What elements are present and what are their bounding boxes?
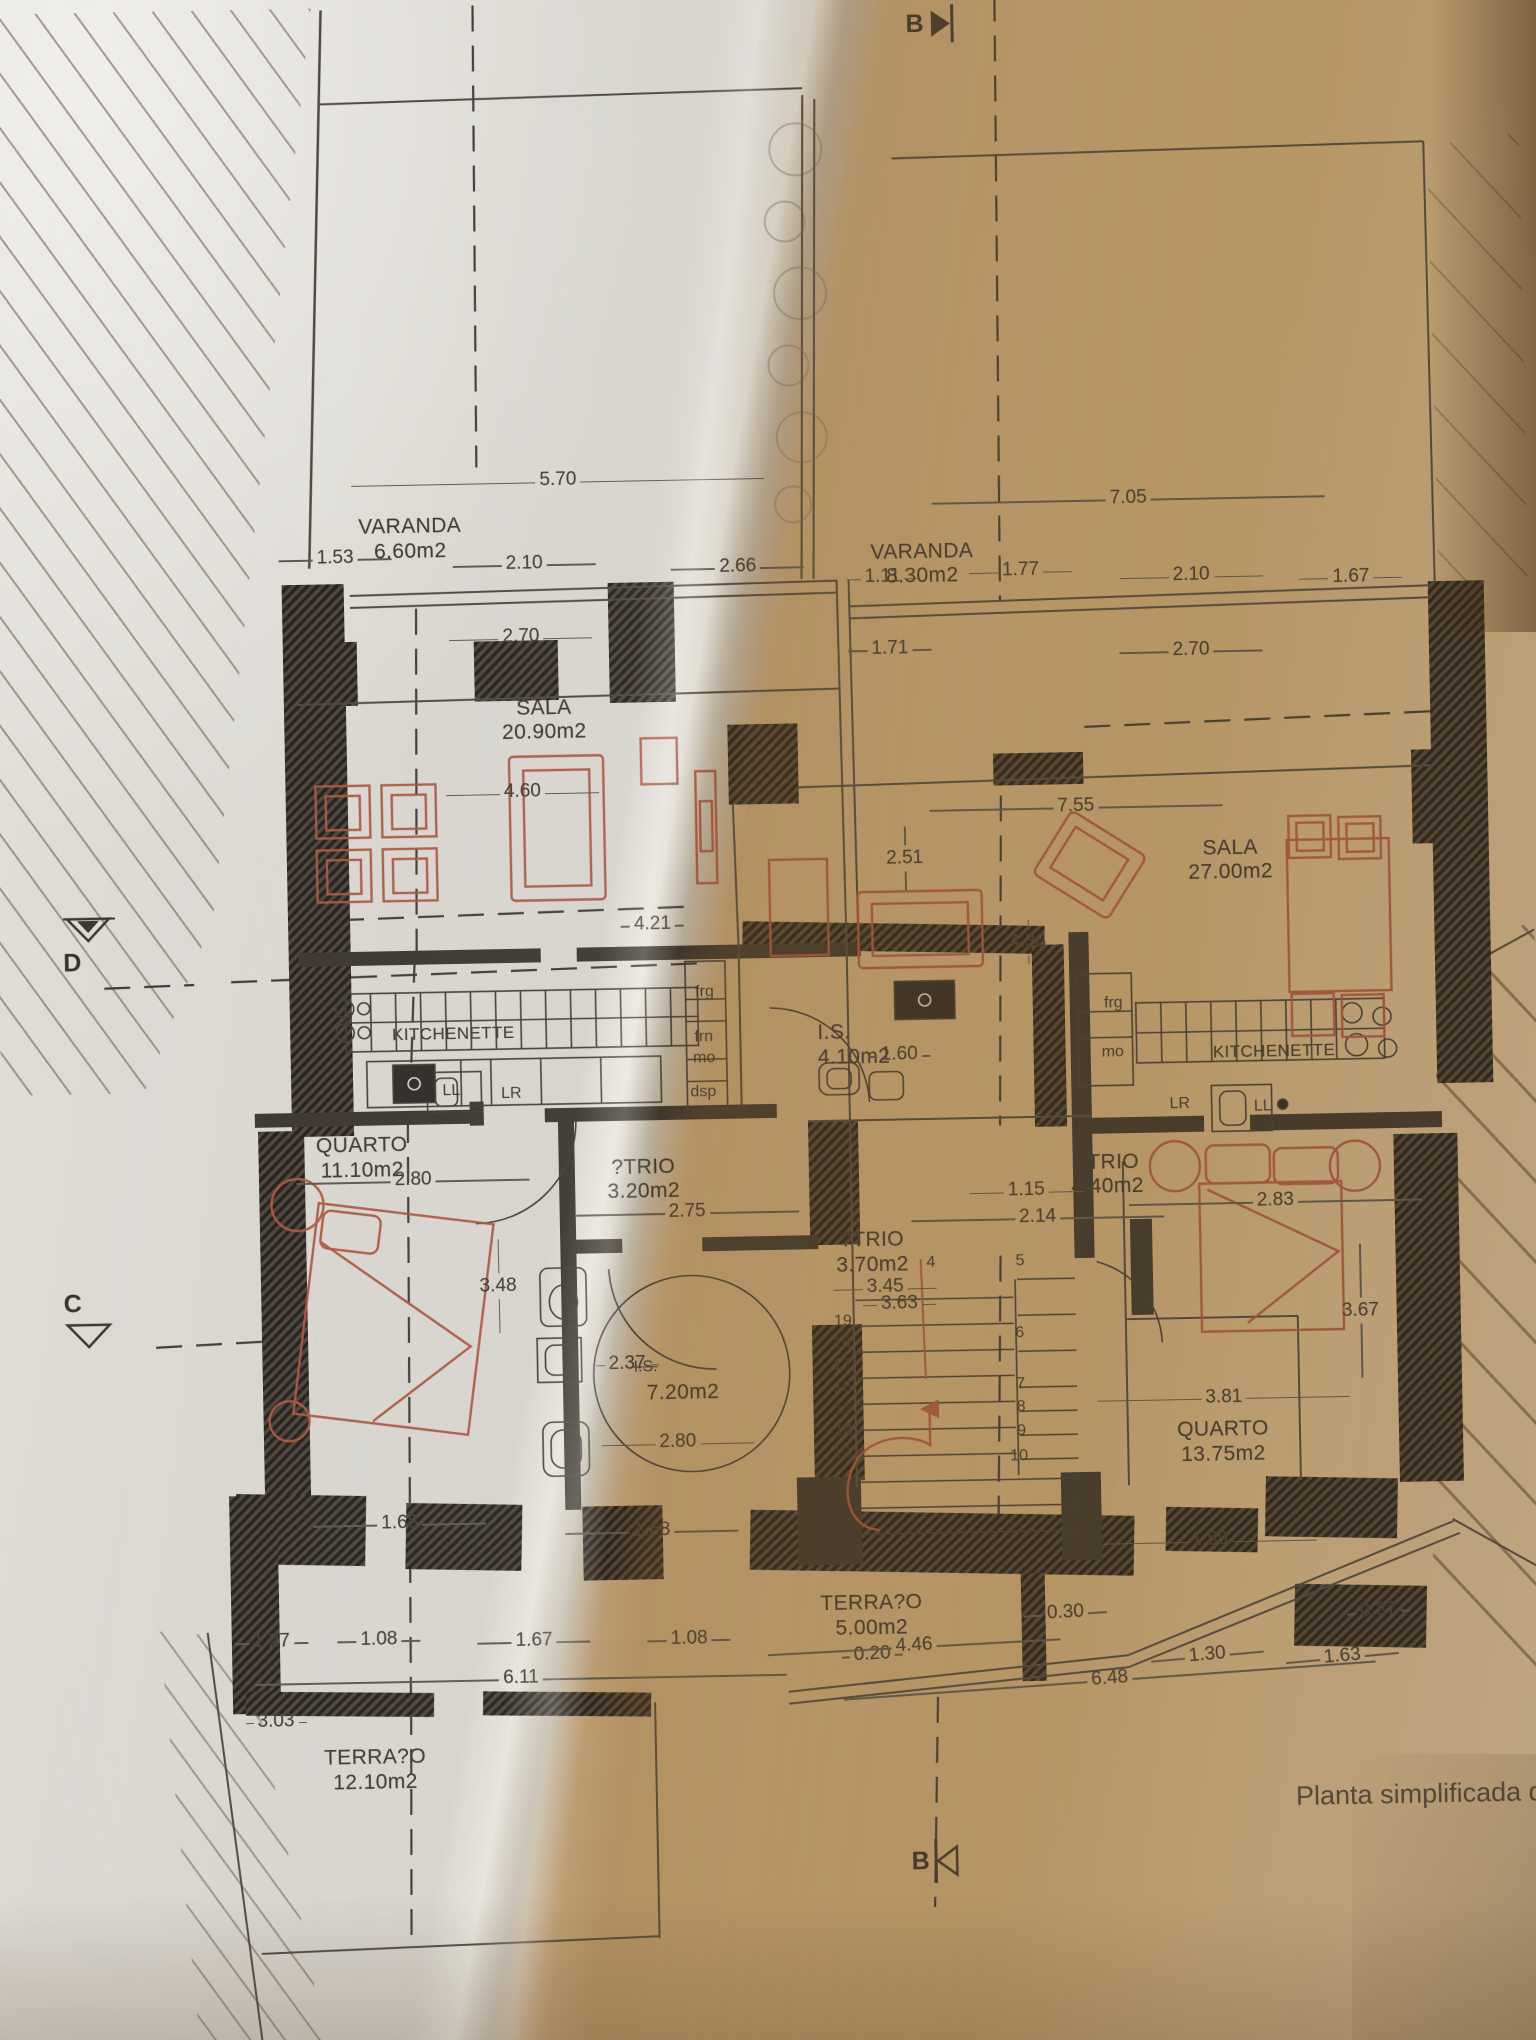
room-label-atrio-right: ?TRIO4.40m2 (1071, 1149, 1144, 1200)
section-label: B (905, 9, 924, 38)
dimension-label: 1.89 (1191, 1529, 1228, 1552)
dimension-label: 6.48 (1090, 1666, 1128, 1691)
stair-step-number: 15 (834, 1400, 852, 1418)
dimension-label: 2.66 (719, 555, 756, 578)
dimension-label: 3.67 (1342, 1299, 1379, 1322)
drawing-area: VARANDA6.60m2VARANDA8.30m2SALA20.90m2SAL… (0, 0, 1536, 2040)
dimension-label: 1.77 (1002, 559, 1039, 582)
stair-step-number: 10 (1010, 1447, 1028, 1465)
stair-step-number: 8 (1017, 1398, 1026, 1416)
section-marker-c: C (63, 1290, 116, 1350)
section-flag-icon (927, 4, 954, 42)
appliance-label-lr: LR (501, 1085, 522, 1103)
section-label: C (63, 1290, 82, 1319)
room-label-atrio-left: ?TRIO3.20m2 (607, 1154, 680, 1205)
section-flag-icon (62, 914, 115, 945)
appliance-label-mo: mo (1101, 1043, 1124, 1061)
room-label-atrio-mid: ?TRIO3.70m2 (836, 1227, 909, 1278)
stair-step-number: 18 (833, 1335, 851, 1353)
appliance-label-frn: frn (694, 1028, 713, 1046)
appliance-label-dsp: dsp (690, 1083, 716, 1101)
dimension-label: 6.11 (503, 1666, 539, 1689)
appliance-label-lr: LR (1169, 1095, 1190, 1113)
dimension-label: 1.71 (871, 637, 908, 660)
dimension-label: 1.68 (381, 1512, 418, 1535)
dimension-label: 2.83 (1257, 1189, 1294, 1212)
stair-step-number: 13 (833, 1444, 851, 1462)
dimension-label: 2.51 (886, 847, 923, 870)
dimension-label: 2.70 (502, 626, 539, 649)
drawing-caption: Planta simplificada de (1296, 1776, 1536, 1812)
appliance-label-frg: frg (695, 983, 714, 1001)
dimension-label: 1.11 (864, 566, 900, 589)
section-label: B (911, 1847, 930, 1876)
dimension-label: 2.70 (1172, 638, 1209, 661)
stair-step-number: 17 (833, 1356, 851, 1374)
dimension-label: 2.14 (1019, 1205, 1056, 1228)
stair-step-number: 16 (834, 1379, 852, 1397)
section-flag-icon (933, 1839, 960, 1883)
stair-step-number: 4 (926, 1254, 935, 1272)
dimension-label: 1.67 (515, 1629, 552, 1652)
stair-step-number: 14 (834, 1423, 852, 1441)
stair-step-number: 19 (834, 1312, 852, 1330)
room-label-quarto-right: QUARTO13.75m2 (1177, 1416, 1269, 1467)
dimension-label: 3.81 (1205, 1386, 1242, 1409)
dimension-label: 1.27 (253, 1630, 290, 1653)
dimension-label: 1.08 (360, 1628, 397, 1651)
stair-step-number: 7 (1016, 1375, 1025, 1393)
dimension-label: 1.30 (1188, 1642, 1227, 1667)
stair-step-number: 5 (1015, 1252, 1024, 1270)
room-label-kitchenette-left: KITCHENETTE (392, 1023, 515, 1045)
dimension-label: 4.46 (895, 1634, 933, 1658)
room-label-terraco-big: TERRA?O12.10m2 (324, 1745, 427, 1796)
dimension-label: 3.48 (479, 1275, 516, 1298)
room-label-sala-right: SALA27.00m2 (1188, 835, 1273, 886)
appliance-label-mo: mo (693, 1049, 716, 1067)
appliance-label-ll: LL (1254, 1097, 1272, 1115)
dimension-label: 0.20 (853, 1643, 891, 1667)
section-marker-d: D (62, 914, 115, 978)
dimension-label: 2.80 (659, 1431, 696, 1454)
dimension-label: 3.03 (257, 1710, 294, 1733)
dimension-label: 2.75 (668, 1200, 705, 1223)
room-label-varanda-left: VARANDA6.60m2 (358, 514, 462, 565)
floorplan-photo: VARANDA6.60m2VARANDA8.30m2SALA20.90m2SAL… (0, 0, 1536, 2040)
section-label: D (63, 949, 82, 978)
dimension-label: 7.05 (1110, 487, 1147, 510)
appliance-label-ll: LL (442, 1082, 460, 1100)
dimension-label: 2.10 (1172, 564, 1209, 587)
dimension-label: 3.63 (881, 1292, 918, 1315)
floorplan-drawing (0, 0, 1536, 2040)
section-flag-icon (64, 1323, 116, 1350)
dimension-label: 2.10 (505, 552, 542, 575)
room-label-sala-left: SALA20.90m2 (501, 695, 586, 746)
dimension-label: 1.60 (881, 1043, 918, 1066)
appliance-label-frg: frg (1104, 994, 1123, 1012)
dimension-label: 0.37 (1359, 1598, 1397, 1623)
dimension-label: 1.15 (1008, 1179, 1045, 1202)
dimension-label: 1.67 (1332, 565, 1369, 588)
room-label-kitchenette-right: KITCHENETTE (1213, 1040, 1336, 1062)
stair-step-number: 9 (1017, 1422, 1026, 1440)
room-label-is-big: 7.20m2 (647, 1380, 720, 1406)
appliance-label-is: I.S. (633, 1358, 657, 1376)
dimension-label: 4.36 (1009, 930, 1046, 953)
dimension-label: 4.21 (634, 913, 671, 936)
dimension-label: 4.60 (504, 781, 541, 804)
stair-step-number: 6 (1015, 1324, 1024, 1342)
dimension-label: 1.53 (316, 547, 353, 570)
section-marker-b-top: B (905, 4, 954, 43)
dimension-label: 5.70 (539, 469, 576, 492)
dimension-label: 7.55 (1057, 795, 1094, 818)
room-label-is-small: I.S.4.10m2 (817, 1020, 890, 1071)
section-marker-b-bottom: B (911, 1839, 960, 1884)
dimension-label: 1.68 (633, 1519, 670, 1542)
dimension-label: 1.08 (671, 1627, 708, 1650)
dimension-label: 0.30 (1046, 1600, 1084, 1624)
dimension-label: 2.80 (394, 1168, 431, 1191)
